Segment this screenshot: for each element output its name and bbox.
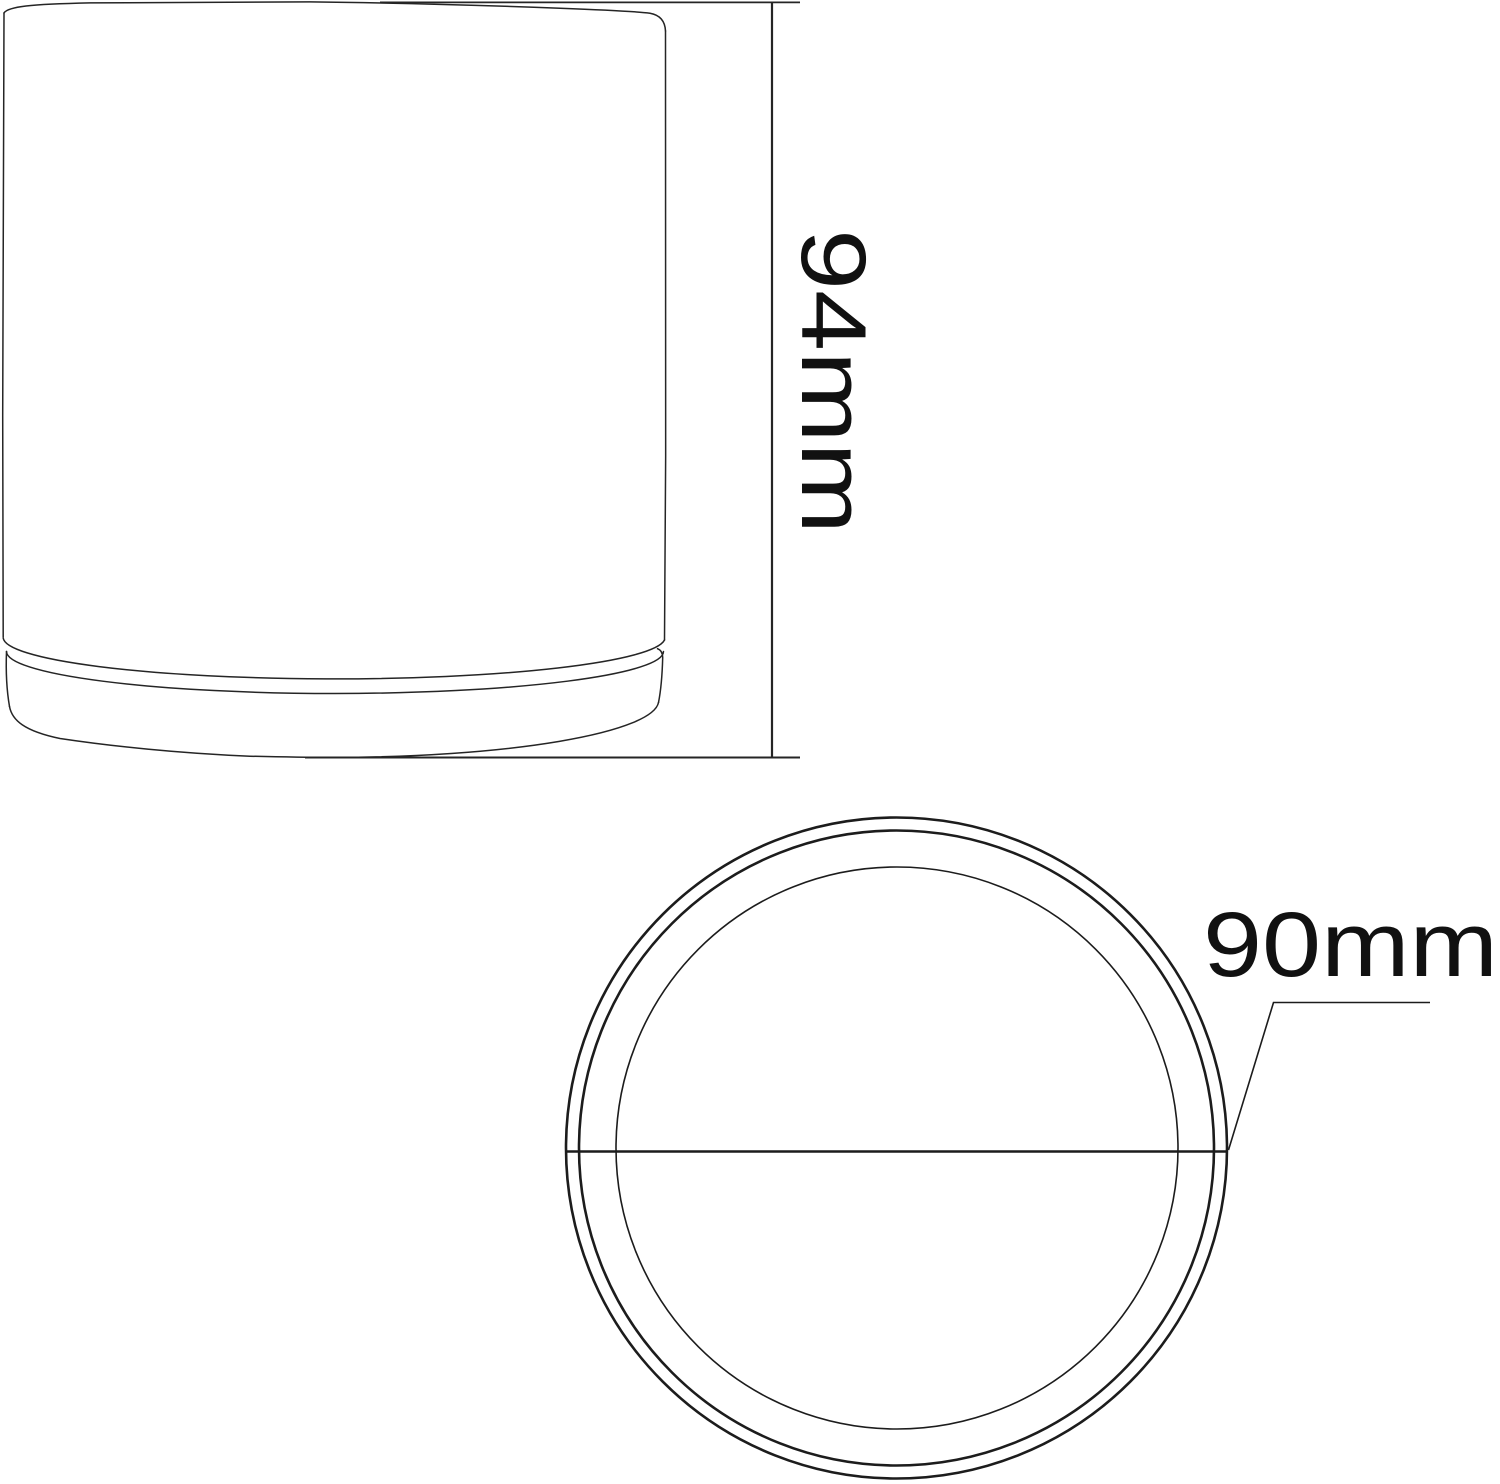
svg-text:90mm: 90mm xyxy=(1203,894,1498,996)
svg-text:94mm: 94mm xyxy=(782,229,884,534)
